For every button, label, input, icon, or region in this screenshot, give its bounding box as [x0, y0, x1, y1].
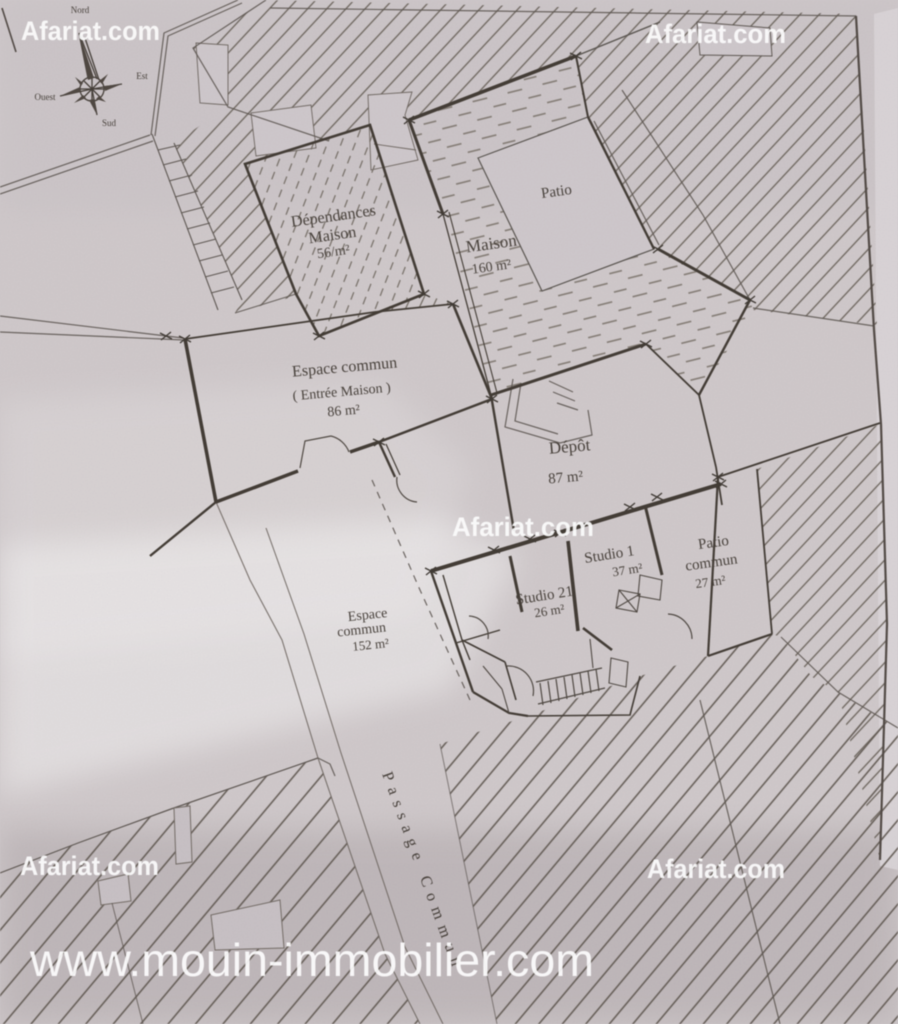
svg-text:www.mouin-immobilier.com: www.mouin-immobilier.com — [29, 934, 594, 986]
